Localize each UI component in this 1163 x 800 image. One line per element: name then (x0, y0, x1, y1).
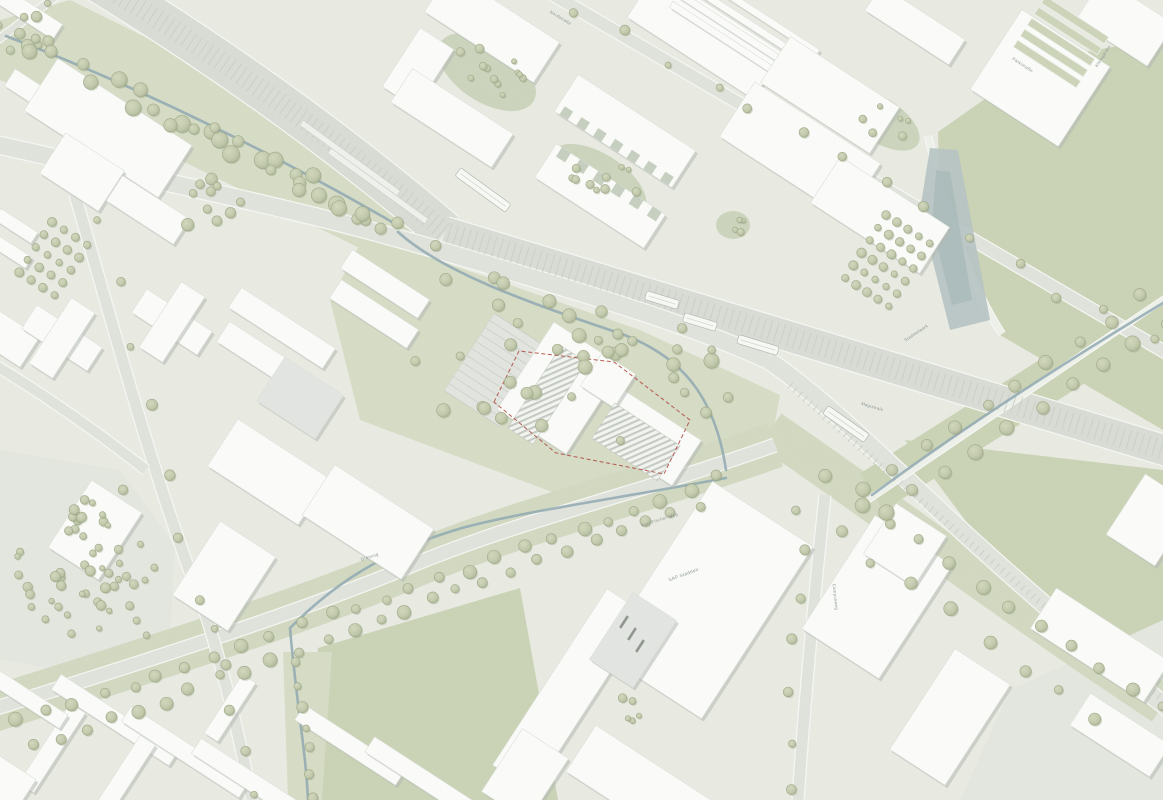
tree (895, 237, 904, 246)
tree (877, 104, 883, 110)
tree (569, 9, 578, 18)
tree (917, 252, 925, 260)
tree (114, 545, 123, 554)
tree (63, 245, 72, 254)
tree (892, 218, 901, 227)
tree (711, 470, 721, 480)
tree (882, 211, 891, 220)
tree (38, 283, 47, 292)
tree (601, 184, 610, 193)
tree (173, 533, 182, 542)
tree (74, 253, 83, 262)
tree (618, 694, 627, 703)
tree (856, 482, 871, 497)
tree (397, 605, 411, 619)
tree (99, 565, 105, 571)
tree (294, 683, 301, 690)
tree (67, 266, 75, 274)
tree (403, 583, 413, 593)
tree (907, 245, 915, 253)
tree (80, 495, 89, 504)
tree (216, 670, 225, 679)
tree (382, 596, 391, 605)
tree (349, 624, 362, 637)
tree (468, 75, 474, 81)
tree (195, 596, 204, 605)
tree (189, 189, 197, 197)
tree (292, 183, 305, 196)
tree (189, 124, 200, 135)
tree (800, 545, 810, 555)
tree (904, 225, 912, 233)
tree (106, 712, 117, 723)
tree (737, 217, 743, 223)
tree (905, 118, 910, 123)
tree (984, 636, 997, 649)
tree (477, 578, 487, 588)
site-plan-map: NordstraßeKurt-Fischer-WegMagistraleStad… (0, 0, 1163, 800)
tree (636, 713, 641, 718)
tree (1066, 640, 1077, 651)
tree (40, 231, 48, 239)
tree (71, 233, 79, 241)
tree (567, 393, 575, 401)
tree (891, 271, 897, 277)
tree (437, 404, 451, 418)
tree (451, 584, 460, 593)
tree (723, 392, 733, 402)
tree (1037, 402, 1050, 415)
tree (716, 84, 723, 91)
tree (885, 303, 892, 310)
tree (886, 464, 897, 475)
tree (1151, 335, 1159, 343)
tree (311, 188, 326, 203)
tree (866, 236, 873, 243)
tree (83, 241, 90, 248)
tree (117, 277, 126, 286)
tree (944, 602, 958, 616)
tree (572, 164, 580, 172)
tree (882, 177, 892, 187)
tree (926, 240, 933, 247)
tree (83, 75, 98, 90)
tree (60, 226, 67, 233)
tree (331, 201, 346, 216)
tree (456, 352, 464, 360)
tree (456, 48, 465, 57)
tree (672, 345, 681, 354)
tree (532, 554, 542, 564)
tree (308, 793, 318, 800)
tree (893, 290, 901, 298)
tree (616, 436, 624, 444)
tree (196, 180, 205, 189)
tree (787, 634, 797, 644)
tree (862, 287, 871, 296)
tree (1126, 683, 1139, 696)
tree (874, 295, 882, 303)
tree (700, 407, 711, 418)
tree (15, 571, 23, 579)
tree (100, 583, 110, 593)
tree (629, 506, 638, 515)
tree (146, 399, 157, 410)
tree (866, 559, 875, 568)
tree (898, 132, 907, 141)
tree (1054, 685, 1063, 694)
tree (221, 660, 231, 670)
tree (616, 525, 626, 535)
tree (859, 115, 867, 123)
tree (143, 632, 150, 639)
tree (297, 617, 308, 628)
tree (883, 283, 890, 290)
tree (127, 343, 134, 350)
tree (517, 72, 523, 78)
tree (602, 346, 614, 358)
tree (1051, 293, 1061, 303)
tree (909, 265, 917, 273)
tree (211, 625, 218, 632)
tree (224, 705, 234, 715)
tree (142, 577, 148, 583)
tree (653, 495, 667, 509)
tree (50, 571, 60, 581)
tree (872, 276, 879, 283)
tree (440, 273, 452, 285)
tree (1035, 620, 1047, 632)
tree (852, 280, 861, 289)
tree (133, 83, 147, 97)
tree (898, 116, 903, 121)
tree (212, 216, 222, 226)
tree (234, 639, 248, 653)
tree (96, 626, 102, 632)
tree (355, 207, 370, 222)
tree (99, 512, 105, 518)
tree (519, 540, 532, 553)
tree (105, 522, 111, 528)
tree (613, 329, 623, 339)
tree (495, 412, 507, 424)
tree (505, 339, 517, 351)
tree (1094, 663, 1105, 674)
tree (164, 470, 175, 481)
tree (80, 533, 87, 540)
tree (77, 58, 89, 70)
tree (82, 725, 92, 735)
tree (602, 173, 610, 181)
tree (51, 238, 60, 247)
tree (836, 526, 847, 537)
tree (1002, 601, 1014, 613)
tree (615, 343, 628, 356)
tree (879, 263, 888, 272)
tree (1016, 259, 1025, 268)
tree (43, 36, 54, 47)
tree (56, 734, 66, 744)
tree (89, 550, 96, 557)
tree (232, 136, 243, 147)
tree (521, 387, 533, 399)
tree (632, 187, 641, 196)
tree (15, 268, 24, 277)
tree (838, 152, 847, 161)
tree (696, 502, 705, 511)
tree (572, 328, 586, 342)
tree (26, 590, 35, 599)
tree (303, 725, 310, 732)
tree (677, 323, 687, 333)
tree (31, 34, 40, 43)
tree (375, 223, 386, 234)
tree (572, 175, 580, 183)
tree (591, 534, 602, 545)
tree (326, 606, 339, 619)
tree (620, 25, 630, 35)
tree (604, 517, 613, 526)
tree (251, 791, 258, 798)
tree (874, 224, 881, 231)
tree (1096, 358, 1110, 372)
tree (855, 498, 870, 513)
tree (948, 421, 961, 434)
tree (131, 683, 141, 693)
tree (64, 527, 73, 536)
tree (475, 44, 484, 53)
tree (85, 566, 95, 576)
tree (241, 746, 251, 756)
tree (596, 306, 608, 318)
tree (791, 506, 800, 515)
tree (561, 546, 573, 558)
tree (708, 346, 716, 354)
tree (665, 62, 671, 68)
tree (68, 630, 76, 638)
tree (578, 522, 592, 536)
tree (513, 318, 523, 328)
tree (291, 657, 300, 666)
tree (203, 205, 212, 214)
tree (552, 344, 563, 355)
tree (111, 72, 127, 88)
tree (887, 250, 896, 259)
tree (685, 484, 699, 498)
tree (799, 128, 809, 138)
tree (879, 505, 894, 520)
tree (939, 466, 952, 479)
tree (868, 255, 877, 264)
tree (28, 739, 38, 749)
tree (32, 243, 39, 250)
tree (392, 217, 404, 229)
tree (47, 217, 56, 226)
tree (999, 420, 1014, 435)
tree (497, 277, 510, 290)
tree (132, 705, 145, 718)
tree (122, 572, 130, 580)
tree (965, 234, 973, 242)
tree (106, 608, 112, 614)
tree (594, 336, 602, 344)
tree (59, 278, 67, 286)
tree (116, 560, 122, 566)
tree (160, 697, 173, 710)
tree (24, 256, 31, 263)
tree (943, 557, 956, 570)
tree (1125, 336, 1140, 351)
tree (976, 580, 990, 594)
tree (55, 603, 63, 611)
tree (79, 591, 85, 597)
tree (306, 168, 321, 183)
tree (743, 104, 752, 113)
tree (434, 572, 444, 582)
tree (263, 653, 277, 667)
tree (137, 541, 143, 547)
tree (64, 612, 70, 618)
tree (629, 697, 636, 704)
tree (20, 13, 28, 21)
tree (1020, 666, 1031, 677)
tree (1099, 305, 1107, 313)
tree (983, 400, 993, 410)
tree (492, 299, 504, 311)
tree (324, 635, 333, 644)
tree (181, 218, 194, 231)
tree (44, 0, 50, 6)
tree (41, 705, 51, 715)
tree (478, 402, 490, 414)
tree (463, 565, 477, 579)
tree (1009, 380, 1021, 392)
tree (129, 580, 138, 589)
tree (625, 716, 630, 721)
tree (487, 550, 500, 563)
tree (212, 132, 228, 148)
tree (28, 603, 35, 610)
tree (294, 648, 304, 658)
tree (786, 785, 796, 795)
tree (915, 233, 922, 240)
tree (94, 217, 101, 224)
tree (44, 251, 51, 258)
tree (266, 165, 276, 175)
tree (69, 505, 79, 515)
tree (1089, 713, 1101, 725)
tree (535, 419, 548, 432)
tree (100, 688, 109, 697)
tree (411, 356, 420, 365)
tree (1134, 288, 1146, 300)
tree (149, 670, 161, 682)
tree (96, 600, 106, 610)
tree (500, 92, 505, 97)
tree (42, 616, 49, 623)
tree (181, 683, 193, 695)
tree (921, 439, 932, 450)
tree (857, 248, 867, 258)
tree (914, 534, 923, 543)
tree (115, 576, 121, 582)
tree (56, 259, 63, 266)
tree (8, 712, 22, 726)
tree (506, 568, 516, 578)
tree (628, 336, 637, 345)
tree (737, 228, 744, 235)
tree (206, 187, 215, 196)
tree (95, 544, 102, 551)
tree (905, 577, 918, 590)
tree (680, 388, 689, 397)
tree (148, 104, 160, 116)
tree (126, 602, 134, 610)
tree (305, 743, 314, 752)
tree (861, 269, 868, 276)
tree (504, 376, 516, 388)
tree (179, 662, 189, 672)
tree (901, 277, 909, 285)
site-plan-stage: NordstraßeKurt-Fischer-WegMagistraleStad… (0, 0, 1163, 800)
tree (849, 261, 858, 270)
tree (22, 44, 37, 59)
tree (704, 353, 719, 368)
tree (479, 62, 487, 70)
tree (236, 198, 244, 206)
tree (578, 360, 592, 374)
tree (669, 373, 679, 383)
tree (876, 243, 884, 251)
tree (918, 201, 928, 211)
tree (125, 100, 141, 116)
tree (543, 295, 556, 308)
tree (430, 240, 441, 251)
tree (6, 46, 14, 54)
tree (133, 617, 140, 624)
tree (968, 445, 983, 460)
tree (842, 274, 849, 281)
tree (31, 11, 42, 22)
tree (377, 615, 386, 624)
tree (586, 180, 594, 188)
tree (209, 652, 220, 663)
tree (511, 59, 516, 64)
tree (238, 666, 251, 679)
tree (1067, 378, 1079, 390)
tree (427, 592, 438, 603)
tree (225, 207, 236, 218)
tree (210, 123, 220, 133)
tree (796, 594, 806, 604)
tree (1038, 355, 1052, 369)
tree (15, 554, 21, 560)
tree (788, 740, 795, 747)
tree (118, 485, 128, 495)
tree (906, 484, 917, 495)
tree (47, 271, 55, 279)
tree (626, 167, 631, 172)
tree (89, 500, 95, 506)
tree (35, 263, 44, 272)
tree (65, 698, 78, 711)
tree (667, 358, 681, 372)
tree (14, 28, 25, 39)
tree (45, 45, 57, 57)
tree (263, 631, 273, 641)
tree (562, 309, 576, 323)
tree (151, 564, 158, 571)
